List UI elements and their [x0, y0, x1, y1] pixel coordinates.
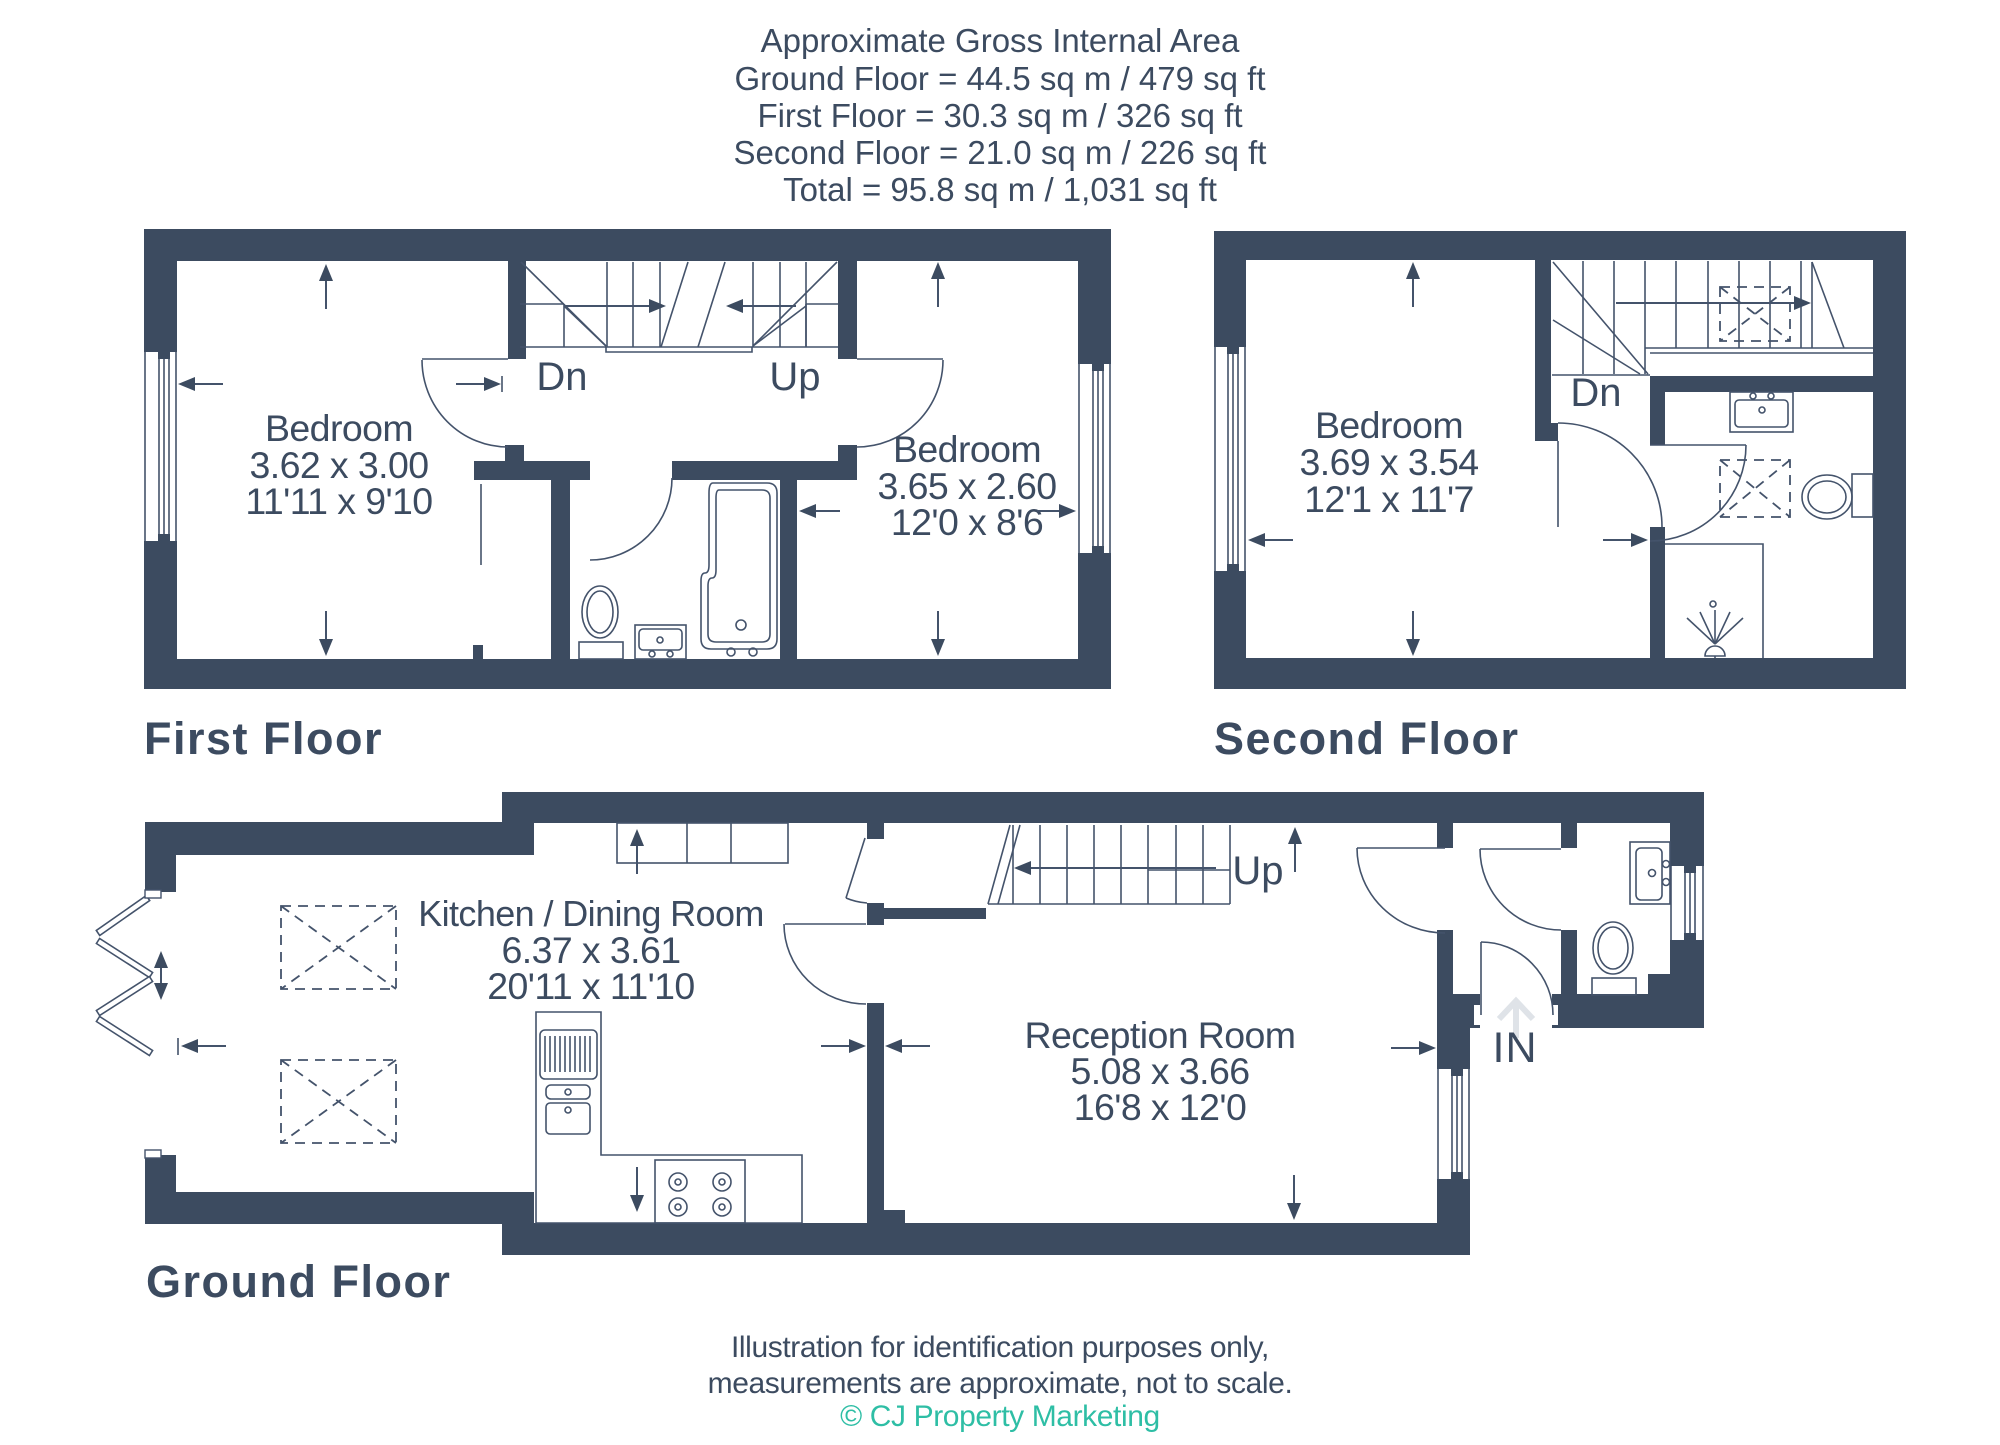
svg-text:Ground Floor: Ground Floor — [146, 1256, 451, 1307]
svg-text:Up: Up — [1232, 849, 1283, 893]
svg-text:Illustration for identificatio: Illustration for identification purposes… — [731, 1331, 1269, 1364]
svg-text:Total = 95.8 sq m / 1,031 sq f: Total = 95.8 sq m / 1,031 sq ft — [783, 171, 1217, 208]
svg-text:Up: Up — [769, 355, 820, 399]
svg-text:16'8 x 12'0: 16'8 x 12'0 — [1074, 1086, 1246, 1128]
svg-text:12'1 x 11'7: 12'1 x 11'7 — [1304, 478, 1474, 520]
svg-text:Second Floor = 21.0 sq m / 226: Second Floor = 21.0 sq m / 226 sq ft — [734, 134, 1267, 171]
svg-text:Second Floor: Second Floor — [1214, 713, 1520, 764]
svg-text:Bedroom: Bedroom — [265, 407, 413, 449]
svg-text:Dn: Dn — [1570, 371, 1621, 415]
svg-text:IN: IN — [1493, 1024, 1538, 1072]
svg-text:20'11 x 11'10: 20'11 x 11'10 — [487, 965, 694, 1007]
svg-text:First Floor = 30.3 sq m / 326: First Floor = 30.3 sq m / 326 sq ft — [757, 97, 1242, 134]
svg-text:Kitchen / Dining Room: Kitchen / Dining Room — [418, 893, 764, 934]
svg-text:© CJ Property Marketing: © CJ Property Marketing — [840, 1400, 1160, 1433]
svg-text:Approximate Gross Internal Are: Approximate Gross Internal Area — [761, 22, 1240, 59]
svg-text:Bedroom: Bedroom — [893, 428, 1041, 470]
svg-text:First Floor: First Floor — [144, 713, 383, 764]
svg-text:measurements are approximate,: measurements are approximate, not to sca… — [708, 1367, 1293, 1400]
svg-text:Bedroom: Bedroom — [1315, 404, 1463, 446]
svg-text:12'0 x 8'6: 12'0 x 8'6 — [891, 501, 1043, 543]
svg-text:Ground Floor = 44.5 sq m / 479: Ground Floor = 44.5 sq m / 479 sq ft — [734, 60, 1265, 97]
svg-text:11'11 x 9'10: 11'11 x 9'10 — [245, 480, 432, 522]
svg-text:Dn: Dn — [536, 355, 587, 399]
svg-text:3.69 x 3.54: 3.69 x 3.54 — [1300, 441, 1479, 483]
